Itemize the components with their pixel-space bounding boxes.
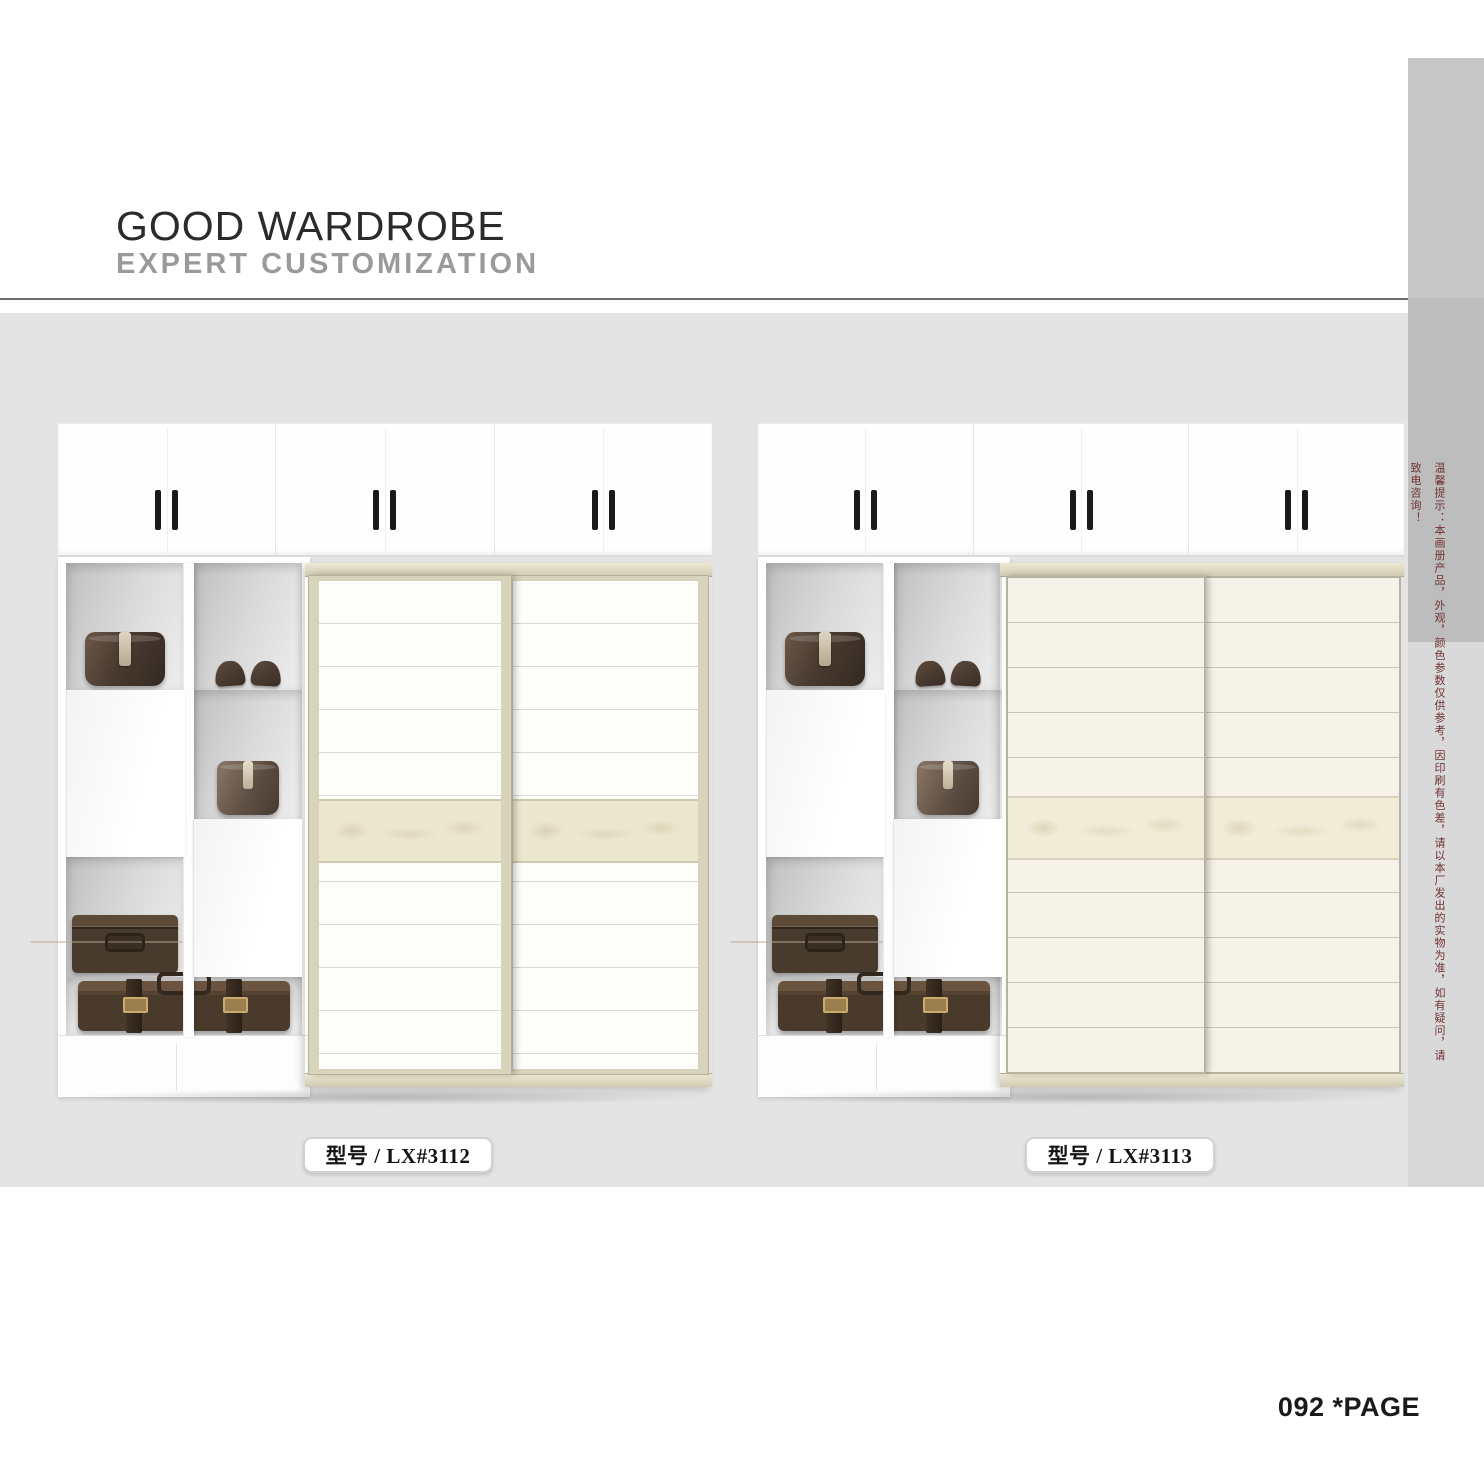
- cabinet-door: [193, 819, 302, 977]
- door-top-rail: [1000, 563, 1404, 577]
- door-accent-band: [1204, 796, 1399, 860]
- suitcase-strap: [226, 979, 242, 1033]
- drawer-base: [758, 1035, 1010, 1097]
- sliding-door-left: [309, 576, 511, 1074]
- cabinet-door: [766, 690, 885, 857]
- sidebar-strip-top: [1408, 58, 1484, 298]
- storage-box: [917, 761, 979, 815]
- door-accent-band: [513, 799, 698, 863]
- cabinet-section: [495, 424, 712, 555]
- open-shelf-unit: [758, 557, 1010, 1097]
- door-accent-band: [1008, 796, 1204, 860]
- model-label-text: 型号 / LX#3112: [326, 1140, 471, 1170]
- trunk-case: [772, 915, 878, 973]
- storage-box: [217, 761, 279, 815]
- door-handle: [1302, 490, 1308, 530]
- cabinet-door: [893, 819, 1002, 977]
- door-top-rail: [305, 563, 712, 577]
- door-handle: [609, 490, 615, 530]
- shoes: [212, 661, 284, 686]
- door-bottom-rail: [1000, 1073, 1404, 1087]
- vertical-disclaimer-note: 温馨提示：本画册产品，外观，颜色参数仅供参考，因印刷有色差，请以本厂发出的实物为…: [1427, 462, 1451, 1062]
- cabinet-handle-pair: [1189, 490, 1404, 530]
- shoes: [912, 661, 984, 686]
- door-handle: [390, 490, 396, 530]
- sliding-door-right: [1202, 576, 1401, 1074]
- suitcase-strap: [126, 979, 142, 1033]
- hat-box: [785, 632, 865, 686]
- shelf-cell: [66, 857, 184, 977]
- cabinet-handle-pair: [58, 490, 275, 530]
- cabinet-handle-pair: [495, 490, 712, 530]
- door-handle: [1070, 490, 1076, 530]
- model-label-lx3113: 型号 / LX#3113: [1025, 1137, 1215, 1173]
- page-number: 092 *PAGE: [1278, 1392, 1420, 1423]
- sliding-door-left: [1006, 576, 1206, 1074]
- sliding-door-unit: [1000, 563, 1404, 1087]
- door-accent-band: [319, 799, 501, 863]
- shoe: [914, 660, 946, 687]
- sliding-door-unit: [305, 563, 712, 1087]
- cabinet-section: [58, 424, 276, 555]
- cabinet-section: [758, 424, 974, 555]
- cabinet-section: [276, 424, 494, 555]
- shelf-cell: [766, 563, 884, 690]
- sliding-door-right: [503, 576, 708, 1074]
- hat-box: [85, 632, 165, 686]
- header-rule: [0, 298, 1484, 300]
- cabinet-handle-pair: [758, 490, 973, 530]
- catalog-page: GOOD WARDROBE EXPERT CUSTOMIZATION 温馨提示：…: [0, 0, 1484, 1484]
- shelf-cell: [66, 563, 184, 690]
- door-handle: [172, 490, 178, 530]
- cabinet-section: [1189, 424, 1404, 555]
- page-title: GOOD WARDROBE: [116, 203, 506, 250]
- cabinet-handle-pair: [276, 490, 493, 530]
- door-handle: [1285, 490, 1291, 530]
- cabinet-section: [974, 424, 1190, 555]
- drawer-base: [58, 1035, 310, 1097]
- trunk-case: [72, 915, 178, 973]
- open-shelf-unit: [58, 557, 310, 1097]
- suitcase-strap: [926, 979, 942, 1033]
- model-label-lx3112: 型号 / LX#3112: [303, 1137, 493, 1173]
- shelf-cell: [194, 690, 302, 819]
- shelf-cell: [194, 563, 302, 690]
- door-handle: [155, 490, 161, 530]
- door-handle: [592, 490, 598, 530]
- shelf-cell: [894, 563, 1002, 690]
- cabinet-door: [66, 690, 185, 857]
- product-photo-lx3112: [58, 423, 712, 1097]
- door-handle: [1087, 490, 1093, 530]
- door-handle: [373, 490, 379, 530]
- top-cabinet-row: [58, 423, 712, 557]
- door-handle: [854, 490, 860, 530]
- shoe: [950, 660, 981, 687]
- page-subtitle: EXPERT CUSTOMIZATION: [116, 248, 539, 281]
- shoe: [214, 660, 246, 687]
- top-cabinet-row: [758, 423, 1404, 557]
- product-photo-lx3113: [758, 423, 1404, 1097]
- door-bottom-rail: [305, 1073, 712, 1087]
- shoe: [250, 660, 281, 687]
- shelf-cell: [766, 857, 884, 977]
- shelf-cell: [894, 690, 1002, 819]
- door-handle: [871, 490, 877, 530]
- cabinet-handle-pair: [974, 490, 1189, 530]
- model-label-text: 型号 / LX#3113: [1048, 1140, 1193, 1170]
- suitcase-strap: [826, 979, 842, 1033]
